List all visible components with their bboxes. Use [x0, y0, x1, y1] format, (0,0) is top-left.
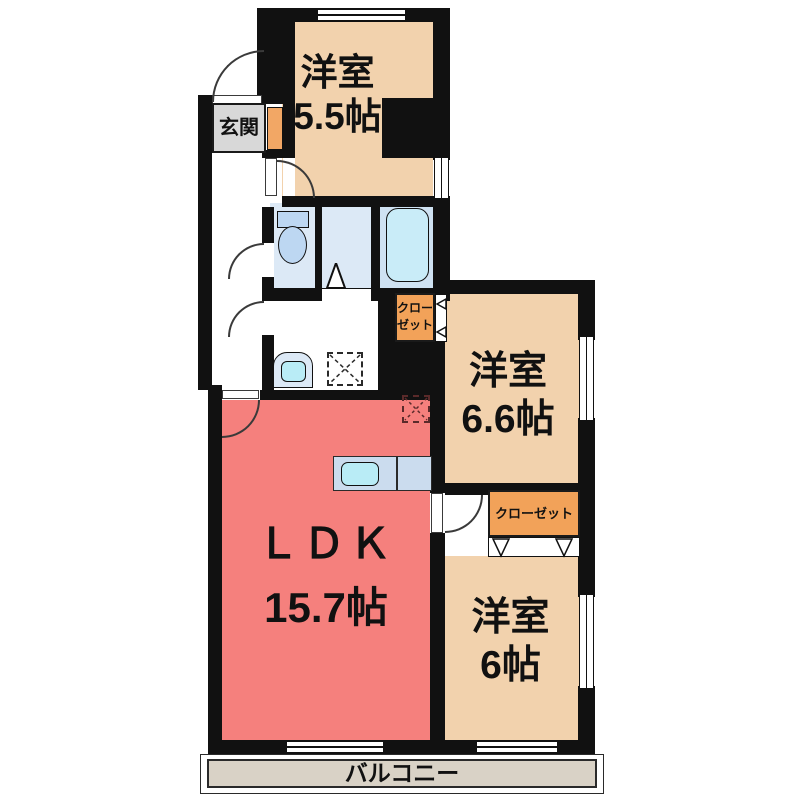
entrance-door-arc — [212, 50, 264, 102]
wall-right-66-upper — [578, 280, 595, 340]
washer-space-x-icon — [327, 352, 363, 386]
room-55-size: 5.5帖 — [270, 98, 405, 137]
window-55-top — [318, 9, 405, 21]
ldk-size: 15.7帖 — [222, 586, 430, 630]
ldk-bedroom-door-leaf — [431, 493, 443, 533]
ldk-floor — [218, 396, 434, 744]
wall-bath-divider — [371, 201, 380, 291]
balcony-label: バルコニー — [207, 759, 597, 788]
ldk-name: ＬＤＫ — [222, 522, 430, 566]
wall-ldk-left — [208, 385, 222, 757]
wall-right-55 — [433, 8, 450, 160]
room-6-size: 6帖 — [443, 646, 578, 687]
wall-toilet-divider — [315, 201, 322, 291]
hall-closet-door-triangle-icon — [436, 298, 447, 310]
floor-plan: 玄関 クローゼット クローゼット バルコニー 洋室 5.5帖 洋室 6.6帖 洋… — [0, 0, 800, 800]
room-66-size: 6.6帖 — [443, 400, 573, 441]
ldk-bedroom-door-arc — [445, 495, 483, 533]
toilet-bowl-icon — [278, 226, 307, 264]
wall-ldk-right — [430, 390, 445, 757]
opening-bath-passage — [322, 289, 371, 301]
toilet-door-arc — [228, 243, 264, 279]
window-6-right — [579, 595, 594, 688]
kitchen-sink-icon — [341, 462, 379, 486]
hall-closet-label: クローゼット — [396, 300, 434, 334]
room6-closet-door-triangle-icon — [555, 538, 573, 558]
kitchen-counter-divider — [396, 456, 398, 491]
window-6-balcony — [477, 741, 557, 753]
room6-closet-label: クローゼット — [488, 490, 580, 537]
ldk-door-leaf — [222, 390, 259, 399]
room-55-name: 洋室 — [270, 54, 405, 93]
wall-below-hall-closet — [395, 342, 445, 392]
fridge-space-x-icon — [402, 395, 430, 423]
window-55-right — [434, 158, 449, 198]
room6-closet-door-triangle-icon — [492, 538, 510, 558]
wall-top-66 — [438, 280, 595, 294]
washbasin-bowl-icon — [281, 361, 306, 382]
wall-hall-left — [198, 95, 212, 390]
window-66-right — [579, 337, 594, 420]
bath-door-triangle-icon — [325, 263, 347, 289]
wall-right-6-upper — [578, 483, 595, 597]
wall-right-66-lower — [578, 418, 595, 488]
bathtub-icon — [386, 208, 429, 282]
room55-door-leaf — [265, 158, 277, 196]
washroom-door-arc — [228, 301, 264, 337]
room-6-name: 洋室 — [443, 598, 578, 639]
room-66-name: 洋室 — [443, 352, 573, 393]
hall-closet-door-triangle-icon — [436, 326, 447, 338]
wall-right-6-lower — [578, 686, 595, 754]
window-ldk-balcony — [287, 741, 383, 753]
wall-below-shoebox — [262, 150, 295, 158]
genkan-label: 玄関 — [212, 103, 266, 153]
